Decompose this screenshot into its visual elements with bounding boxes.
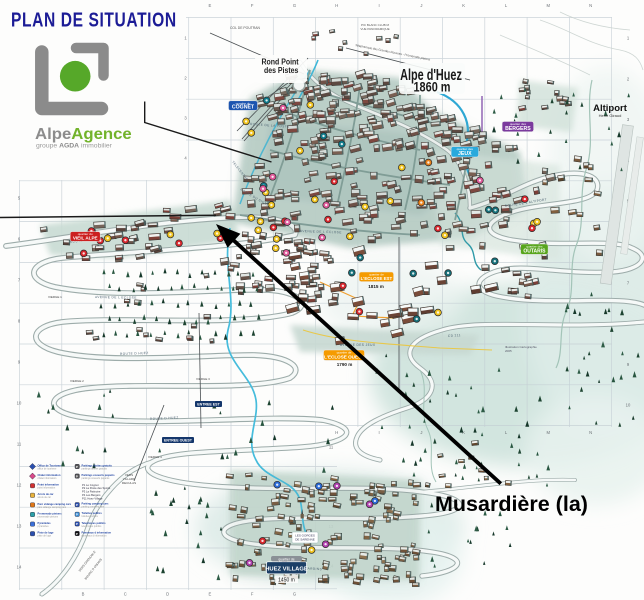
svg-text:JEUX: JEUX: [458, 151, 472, 157]
svg-text:13: 13: [17, 524, 22, 529]
svg-text:I: I: [379, 3, 380, 8]
svg-text:COGNET: COGNET: [232, 105, 255, 111]
svg-text:1450 m: 1450 m: [278, 578, 295, 584]
svg-text:1790 m: 1790 m: [337, 362, 353, 367]
svg-text:M: M: [547, 3, 551, 8]
svg-text:AVENUE DE L ECLOSE: AVENUE DE L ECLOSE: [95, 295, 137, 300]
svg-text:K: K: [462, 3, 465, 8]
svg-text:14: 14: [17, 565, 22, 570]
svg-text:arrets de car: arrets de car: [38, 496, 52, 499]
svg-text:12: 12: [17, 483, 22, 488]
svg-text:G: G: [293, 3, 296, 8]
svg-text:parkings couverts payants: parkings couverts payants: [82, 477, 111, 480]
svg-text:VUE PANORAMIQUE: VUE PANORAMIQUE: [360, 27, 389, 31]
svg-text:DE SARENNE: DE SARENNE: [295, 538, 315, 542]
svg-text:VIERGE 4: VIERGE 4: [148, 455, 162, 459]
svg-text:P1 Le Cognet: P1 Le Cognet: [82, 483, 99, 487]
svg-text:RECULAS: RECULAS: [122, 481, 136, 485]
svg-text:telephones publics: telephones publics: [82, 525, 103, 528]
svg-text:des Pistes: des Pistes: [264, 66, 298, 76]
svg-text:VIERGE 1: VIERGE 1: [48, 295, 62, 299]
svg-text:toilettes publics: toilettes publics: [82, 515, 99, 518]
svg-text:parking camping cars: parking camping cars: [82, 506, 106, 509]
svg-text:AlpeAgence: AlpeAgence: [35, 126, 132, 143]
svg-text:D: D: [166, 592, 169, 597]
svg-text:1815 m: 1815 m: [368, 284, 384, 289]
svg-text:10: 10: [17, 401, 22, 406]
svg-text:2005: 2005: [505, 349, 512, 353]
svg-text:P: P: [76, 474, 78, 478]
svg-text:N: N: [589, 430, 592, 435]
svg-text:P3 La Patinoire: P3 La Patinoire: [82, 490, 101, 494]
svg-text:chalet information: chalet information: [38, 477, 58, 480]
svg-text:N: N: [589, 3, 592, 8]
svg-text:J: J: [420, 430, 422, 435]
svg-text:groupe AGDA immobilier: groupe AGDA immobilier: [36, 143, 113, 150]
svg-text:G: G: [293, 592, 296, 597]
svg-text:H: H: [335, 3, 338, 8]
svg-text:P2 La Poste des Sports: P2 La Poste des Sports: [82, 486, 111, 490]
svg-text:Musardière (la): Musardière (la): [435, 492, 588, 516]
svg-text:M: M: [547, 430, 551, 435]
svg-text:ENTREE EST: ENTREE EST: [197, 403, 220, 407]
svg-text:point information: point information: [38, 487, 56, 490]
svg-text:P4 Les Bergers: P4 Les Bergers: [82, 493, 101, 497]
svg-text:BERGERS: BERGERS: [505, 126, 531, 132]
svg-text:VIERGE 3: VIERGE 3: [196, 377, 210, 381]
svg-text:piste de luge: piste de luge: [38, 535, 52, 538]
svg-text:F: F: [251, 592, 254, 597]
svg-text:P: P: [76, 522, 78, 526]
svg-text:OUTARIS: OUTARIS: [523, 249, 546, 255]
svg-text:panneaux d information: panneaux d information: [82, 534, 108, 537]
svg-text:ENTREE OUEST: ENTREE OUEST: [164, 439, 193, 443]
svg-text:L'ECLOSE EST: L'ECLOSE EST: [361, 276, 393, 281]
svg-text:HUEZ VILLAGE: HUEZ VILLAGE: [265, 566, 308, 572]
svg-text:P: P: [76, 513, 78, 517]
svg-text:I: I: [379, 430, 380, 435]
svg-text:P: P: [76, 532, 78, 536]
svg-text:parkings abrites gratuits: parkings abrites gratuits: [82, 467, 108, 470]
svg-text:10: 10: [626, 403, 631, 408]
svg-text:1860 m: 1860 m: [413, 79, 450, 95]
svg-text:VIEIL ALPE: VIEIL ALPE: [73, 236, 98, 241]
svg-text:Henri Giraud: Henri Giraud: [599, 113, 622, 118]
svg-text:J: J: [420, 3, 422, 8]
svg-text:P: P: [76, 465, 78, 469]
svg-text:pyramides: pyramides: [38, 525, 50, 528]
svg-text:11: 11: [17, 442, 22, 447]
svg-text:parc vidange camping cars: parc vidange camping cars: [38, 506, 67, 509]
svg-text:E: E: [209, 3, 212, 8]
svg-text:P: P: [76, 503, 78, 507]
svg-text:office de tourisme: office de tourisme: [38, 467, 57, 470]
svg-text:B: B: [82, 592, 85, 597]
svg-text:VIERGE 2: VIERGE 2: [70, 379, 84, 383]
svg-text:F: F: [251, 3, 254, 8]
svg-text:COL DE POUTRAN: COL DE POUTRAN: [230, 26, 261, 30]
svg-text:P11 Huez Village: P11 Huez Village: [82, 496, 103, 500]
svg-text:H: H: [335, 430, 338, 435]
svg-text:PLAN DE SITUATION: PLAN DE SITUATION: [11, 8, 177, 31]
svg-text:promenade pietons: promenade pietons: [38, 515, 59, 518]
svg-text:quartier de: quartier de: [278, 557, 294, 561]
svg-text:E: E: [209, 592, 212, 597]
svg-text:C: C: [124, 592, 127, 597]
